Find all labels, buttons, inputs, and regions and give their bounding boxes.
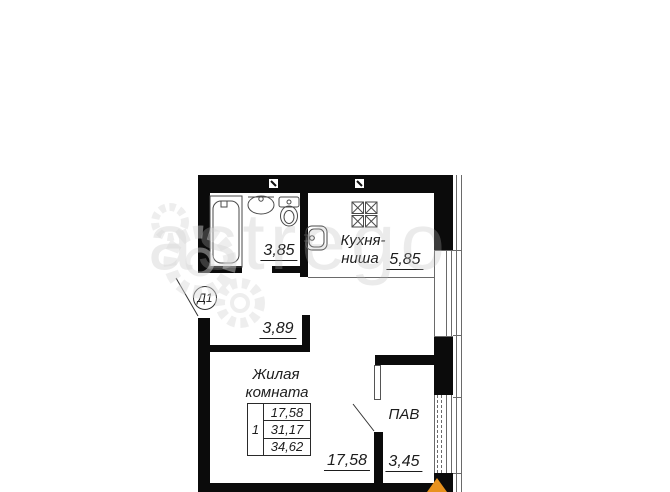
compass-north-icon [427, 478, 447, 492]
floor-plan: Д1 3,85 Кухня- ниша 5,85 3,89 Жилая комн… [0, 0, 670, 492]
area-table-living: 17,58 [264, 404, 310, 420]
living-area: 17,58 [324, 452, 370, 471]
pantry-door-leaf [374, 365, 381, 400]
area-table: 1 17,58 31,17 34,62 [247, 403, 311, 456]
vent-mark-icon [271, 181, 362, 186]
living-label-line1: Жилая [253, 366, 300, 383]
door-label-text: Д1 [197, 291, 212, 305]
pantry-door-swing [353, 404, 374, 431]
pantry-area: 3,45 [385, 453, 422, 472]
kitchen-label-line2: ниша [341, 250, 378, 267]
area-table-rooms-count: 1 [248, 404, 264, 455]
bathtub-icon [210, 196, 242, 267]
bathroom-area: 3,85 [260, 242, 297, 261]
toilet-icon [279, 197, 299, 226]
kitchen-label-line1: Кухня- [341, 232, 386, 249]
kitchen-sink-icon [304, 226, 327, 250]
entry-door-label: Д1 [193, 286, 217, 310]
hallway-area: 3,89 [259, 320, 296, 339]
kitchen-area: 5,85 [386, 251, 423, 270]
area-table-area: 31,17 [264, 420, 310, 437]
living-label-line2: комната [246, 384, 309, 401]
pantry-label: ПАВ [389, 406, 420, 423]
stove-icon [352, 202, 377, 227]
bathroom-sink-icon [248, 196, 274, 214]
area-table-total: 34,62 [264, 438, 310, 455]
